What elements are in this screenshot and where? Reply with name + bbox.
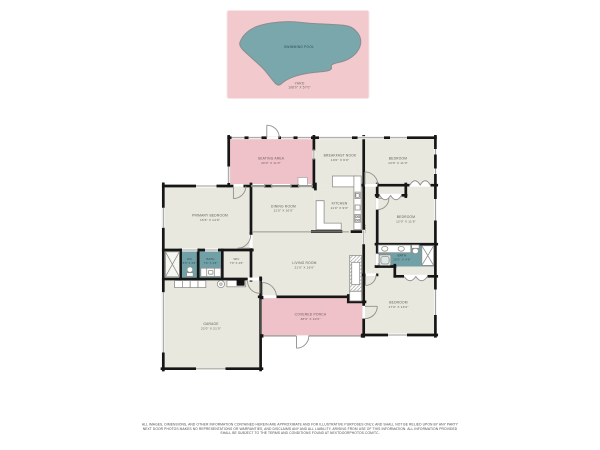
svg-text:12'0" X 11'6": 12'0" X 11'6" bbox=[396, 219, 416, 223]
svg-text:11'0" X 10'0": 11'0" X 10'0" bbox=[274, 209, 294, 213]
svg-text:10'0" X 4'6": 10'0" X 4'6" bbox=[393, 258, 411, 262]
svg-text:10'0" X 9'0": 10'0" X 9'0" bbox=[331, 158, 349, 162]
svg-text:5'0" X 4'6": 5'0" X 4'6" bbox=[183, 261, 197, 265]
svg-text:7'0" X 4'6": 7'0" X 4'6" bbox=[230, 261, 244, 265]
svg-text:13'0" X 11'0": 13'0" X 11'0" bbox=[388, 161, 408, 165]
svg-text:11'0" X 9'6": 11'0" X 9'6" bbox=[331, 206, 349, 210]
svg-text:SHALL BE SUBJECT TO THE TERMS: SHALL BE SUBJECT TO THE TERMS AND CONDIT… bbox=[220, 431, 379, 435]
svg-text:15'6" X 14'0": 15'6" X 14'0" bbox=[200, 218, 220, 222]
svg-text:21'0" X 16'0": 21'0" X 16'0" bbox=[294, 266, 314, 270]
svg-text:22'0" X 21'0": 22'0" X 21'0" bbox=[201, 326, 221, 330]
svg-text:108'0" X 57'0": 108'0" X 57'0" bbox=[288, 86, 311, 90]
svg-text:SWIMMING POOL: SWIMMING POOL bbox=[284, 45, 314, 49]
svg-text:20'0" X 11'0": 20'0" X 11'0" bbox=[261, 161, 281, 165]
svg-text:17'0" X 13'0": 17'0" X 13'0" bbox=[388, 305, 408, 309]
svg-text:38'0" X 10'0": 38'0" X 10'0" bbox=[300, 317, 320, 321]
svg-text:7'0" X 4'6": 7'0" X 4'6" bbox=[204, 261, 218, 265]
